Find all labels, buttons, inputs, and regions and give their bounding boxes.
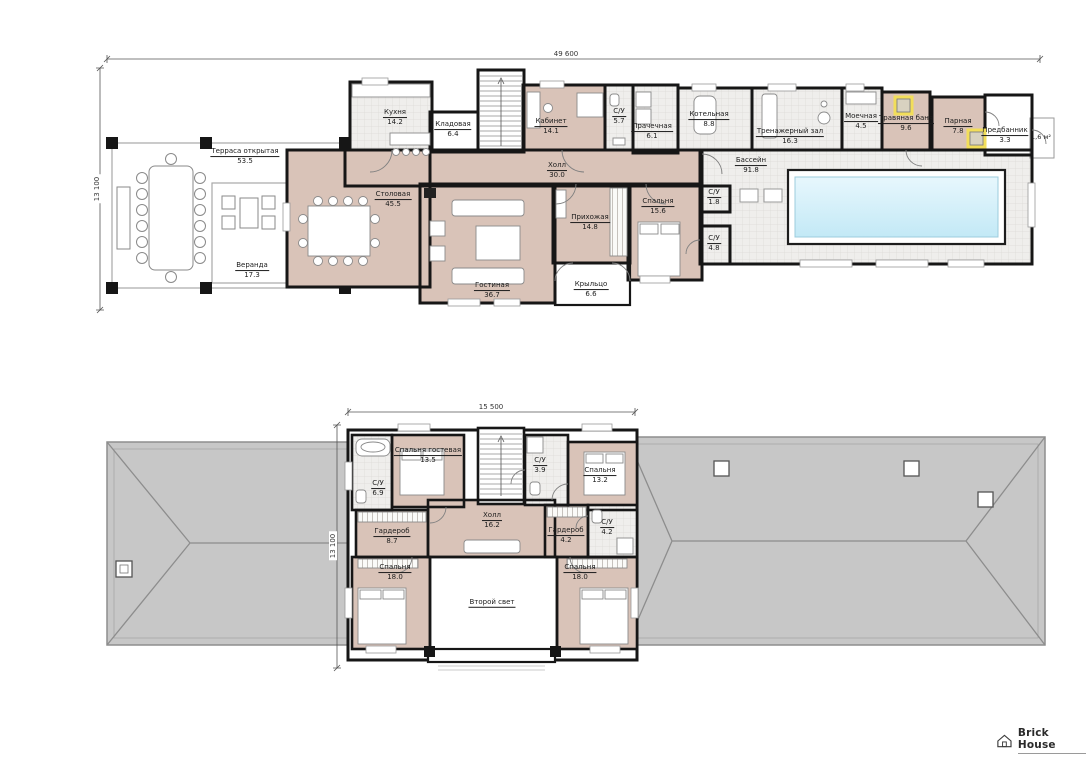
room-name: Кабинет	[534, 117, 567, 127]
room-area: 4.2	[560, 537, 571, 546]
room-name: Гардероб	[373, 527, 410, 537]
room-name: Столовая	[375, 190, 412, 200]
dimension-floor1-height: 13 100	[93, 175, 101, 204]
floor2-balcony	[424, 646, 561, 670]
room-label-entry: Прихожая 14.8	[570, 213, 610, 233]
room-area: 4.2	[601, 529, 612, 538]
wardrobe-shelves	[358, 512, 426, 522]
room-area: 91.8	[743, 167, 759, 176]
room-area: 6.1	[646, 133, 657, 142]
washroom-bench	[846, 92, 876, 104]
room-label-kitchen: Кухня 14.2	[383, 108, 407, 128]
toilet	[530, 482, 540, 495]
hall-sofa	[464, 540, 520, 553]
room-area: 6.6	[585, 291, 596, 300]
room-label-hall2: Холл 16.2	[482, 511, 502, 531]
room-name: Холл	[482, 511, 502, 521]
room-name: Гардероб	[547, 526, 584, 536]
room-area: 3.9	[534, 467, 545, 476]
toilet	[356, 490, 366, 503]
room-label-pool: Бассейн 91.8	[735, 156, 767, 176]
room-label-void: Второй свет	[468, 598, 515, 608]
terrace-table	[149, 166, 193, 270]
room-area: 13.5	[420, 457, 436, 466]
room-name: Парная	[943, 117, 972, 127]
brand-tagline-rule	[1018, 753, 1086, 754]
room-area: 9.6	[900, 125, 911, 134]
room-area: 18.0	[572, 574, 588, 583]
chimney	[116, 561, 132, 577]
room-area: 6.9	[372, 490, 383, 499]
roof-left	[107, 442, 360, 645]
sink	[613, 138, 625, 145]
room-label-veranda: Веранда 17.3	[235, 261, 269, 281]
dining-table	[308, 206, 370, 256]
room-area: 14.1	[543, 128, 559, 137]
room-area: 5.7	[613, 118, 624, 127]
room-label-living: Гостиная 36.7	[474, 281, 510, 301]
room-label-gym: Тренажерный зал 16.3	[756, 127, 824, 147]
room-label-wc42: С/У 4.2	[600, 518, 614, 538]
house-icon	[996, 733, 1013, 749]
room-label-washroom: Моечная 4.5	[844, 112, 878, 132]
room-label-laundry: Прачечная 6.1	[631, 122, 673, 142]
room-area: 1.8	[708, 199, 719, 208]
room-name: Кухня	[383, 108, 407, 118]
room-area: 3.3	[999, 137, 1010, 146]
room-name: Прихожая	[570, 213, 610, 223]
room-name: Спальня	[378, 563, 411, 573]
room-label-wc69: С/У 6.9	[371, 479, 385, 499]
room-name: Моечная	[844, 112, 878, 122]
room-name: С/У	[707, 234, 721, 244]
tv-panel	[424, 188, 436, 198]
room-name: Предбанник	[981, 126, 1028, 136]
room-name: Тренажерный зал	[756, 127, 824, 137]
room-area: 45.5	[385, 201, 401, 210]
room-label-bed18-right: Спальня 18.0	[563, 563, 596, 583]
area-note: 1,6 м²	[1031, 133, 1051, 141]
brand-name: Brick House	[1018, 727, 1086, 751]
room-area: 7.8	[952, 128, 963, 137]
room-name: Спальня	[563, 563, 596, 573]
room-label-wc18: С/У 1.8	[707, 188, 721, 208]
room-name: Спальня	[583, 466, 616, 476]
room-name: Холл	[547, 161, 567, 171]
room-name: Крыльцо	[574, 280, 609, 290]
room-hall-floor	[345, 150, 702, 186]
room-name: Травяная баня	[878, 114, 934, 124]
chimney	[978, 492, 993, 507]
room-area: 14.8	[582, 224, 598, 233]
room-area: 8.8	[703, 121, 714, 130]
living-sofa	[452, 200, 524, 216]
room-label-hall: Холл 30.0	[547, 161, 567, 181]
room-label-wc39: С/У 3.9	[533, 456, 547, 476]
room-area: 8.7	[386, 538, 397, 547]
room-name: Второй свет	[468, 598, 515, 608]
room-label-guest-bedroom: Спальня гостевая 13.5	[394, 446, 462, 466]
room-name: С/У	[533, 456, 547, 466]
room-area: 6.4	[447, 131, 458, 140]
room-label-boiler: Котельная 8.8	[688, 110, 729, 130]
shower	[617, 538, 633, 554]
shower	[527, 437, 543, 453]
drawing-sheet: Терраса открытая 53.5 Веранда 17.3 Кухня…	[0, 0, 1086, 768]
room-name: Спальня	[641, 197, 674, 207]
room-area: 13.2	[592, 477, 608, 486]
room-ante-floor	[985, 95, 1032, 155]
room-label-herbal: Травяная баня 9.6	[878, 114, 934, 134]
dimension-floor2-height: 13 100	[329, 532, 337, 561]
room-name: С/У	[371, 479, 385, 489]
room-label-bed18-left: Спальня 18.0	[378, 563, 411, 583]
room-area: 16.2	[484, 522, 500, 531]
washing-machine	[636, 92, 651, 107]
room-label-pantry: Кладовая 6.4	[434, 120, 471, 140]
entry-wardrobe	[610, 188, 627, 256]
room-label-ward42: Гардероб 4.2	[547, 526, 584, 546]
room-label-ante: Предбанник 3.3	[981, 126, 1028, 146]
room-label-bedroom: Спальня 15.6	[641, 197, 674, 217]
wardrobe-shelves	[547, 507, 586, 517]
room-label-porch: Крыльцо 6.6	[574, 280, 609, 300]
pool-lounger	[764, 189, 782, 202]
bbq-counter	[117, 187, 130, 249]
room-name: Гостиная	[474, 281, 510, 291]
room-area: 4.5	[855, 123, 866, 132]
pool-lounger	[740, 189, 758, 202]
chimney	[714, 461, 729, 476]
room-area: 4.8	[708, 245, 719, 254]
room-name: С/У	[612, 107, 626, 117]
room-name: Котельная	[688, 110, 729, 120]
room-label-bed132: Спальня 13.2	[583, 466, 616, 486]
room-name: С/У	[707, 188, 721, 198]
room-area: 30.0	[549, 172, 565, 181]
room-label-terrace: Терраса открытая 53.5	[210, 147, 279, 167]
room-label-wc48: С/У 4.8	[707, 234, 721, 254]
room-area: 36.7	[484, 292, 500, 301]
office-closet	[577, 93, 603, 117]
room-name: Кладовая	[434, 120, 471, 130]
room-area: 16.3	[782, 138, 798, 147]
coffee-table	[476, 226, 520, 260]
room-area: 15.6	[650, 208, 666, 217]
room-name: С/У	[600, 518, 614, 528]
room-area: 14.2	[387, 119, 403, 128]
room-label-office: Кабинет 14.1	[534, 117, 567, 137]
chimney	[904, 461, 919, 476]
dimension-floor1-width: 49 600	[552, 50, 581, 58]
room-label-ward87: Гардероб 8.7	[373, 527, 410, 547]
room-area: 53.5	[237, 158, 253, 167]
room-name: Бассейн	[735, 156, 767, 166]
room-area: 18.0	[387, 574, 403, 583]
room-name: Прачечная	[631, 122, 673, 132]
roof-right	[627, 437, 1045, 645]
room-name: Спальня гостевая	[394, 446, 462, 456]
room-name: Веранда	[235, 261, 269, 271]
exercise-bike	[818, 112, 830, 124]
room-label-wc57: С/У 5.7	[612, 107, 626, 127]
room-label-dining: Столовая 45.5	[375, 190, 412, 210]
room-area: 17.3	[244, 272, 260, 281]
room-label-steam: Парная 7.8	[943, 117, 972, 137]
room-name: Терраса открытая	[210, 147, 279, 157]
toilet	[610, 94, 619, 106]
brand-logo: Brick House	[996, 727, 1086, 754]
dimension-floor2-width: 15 500	[477, 403, 506, 411]
